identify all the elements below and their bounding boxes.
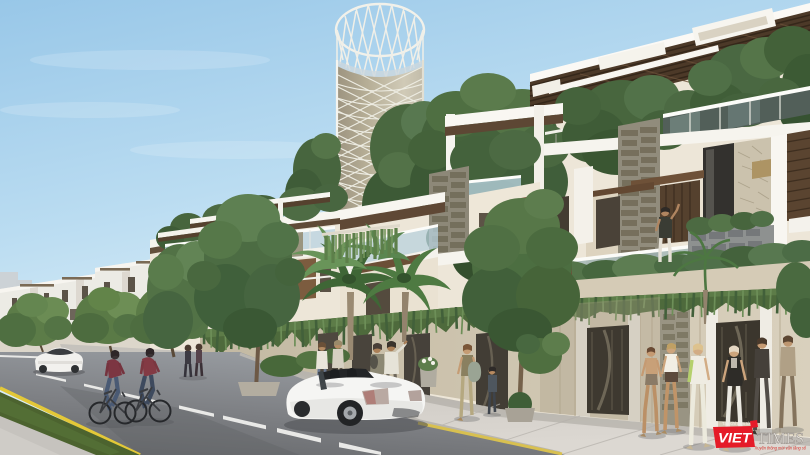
svg-text:Tạp chí điện tử: Tạp chí điện tử (722, 421, 750, 426)
svg-text:Truyền thông mới vẫn tầng số: Truyền thông mới vẫn tầng số (754, 446, 807, 451)
svg-text:VIET: VIET (718, 431, 753, 446)
